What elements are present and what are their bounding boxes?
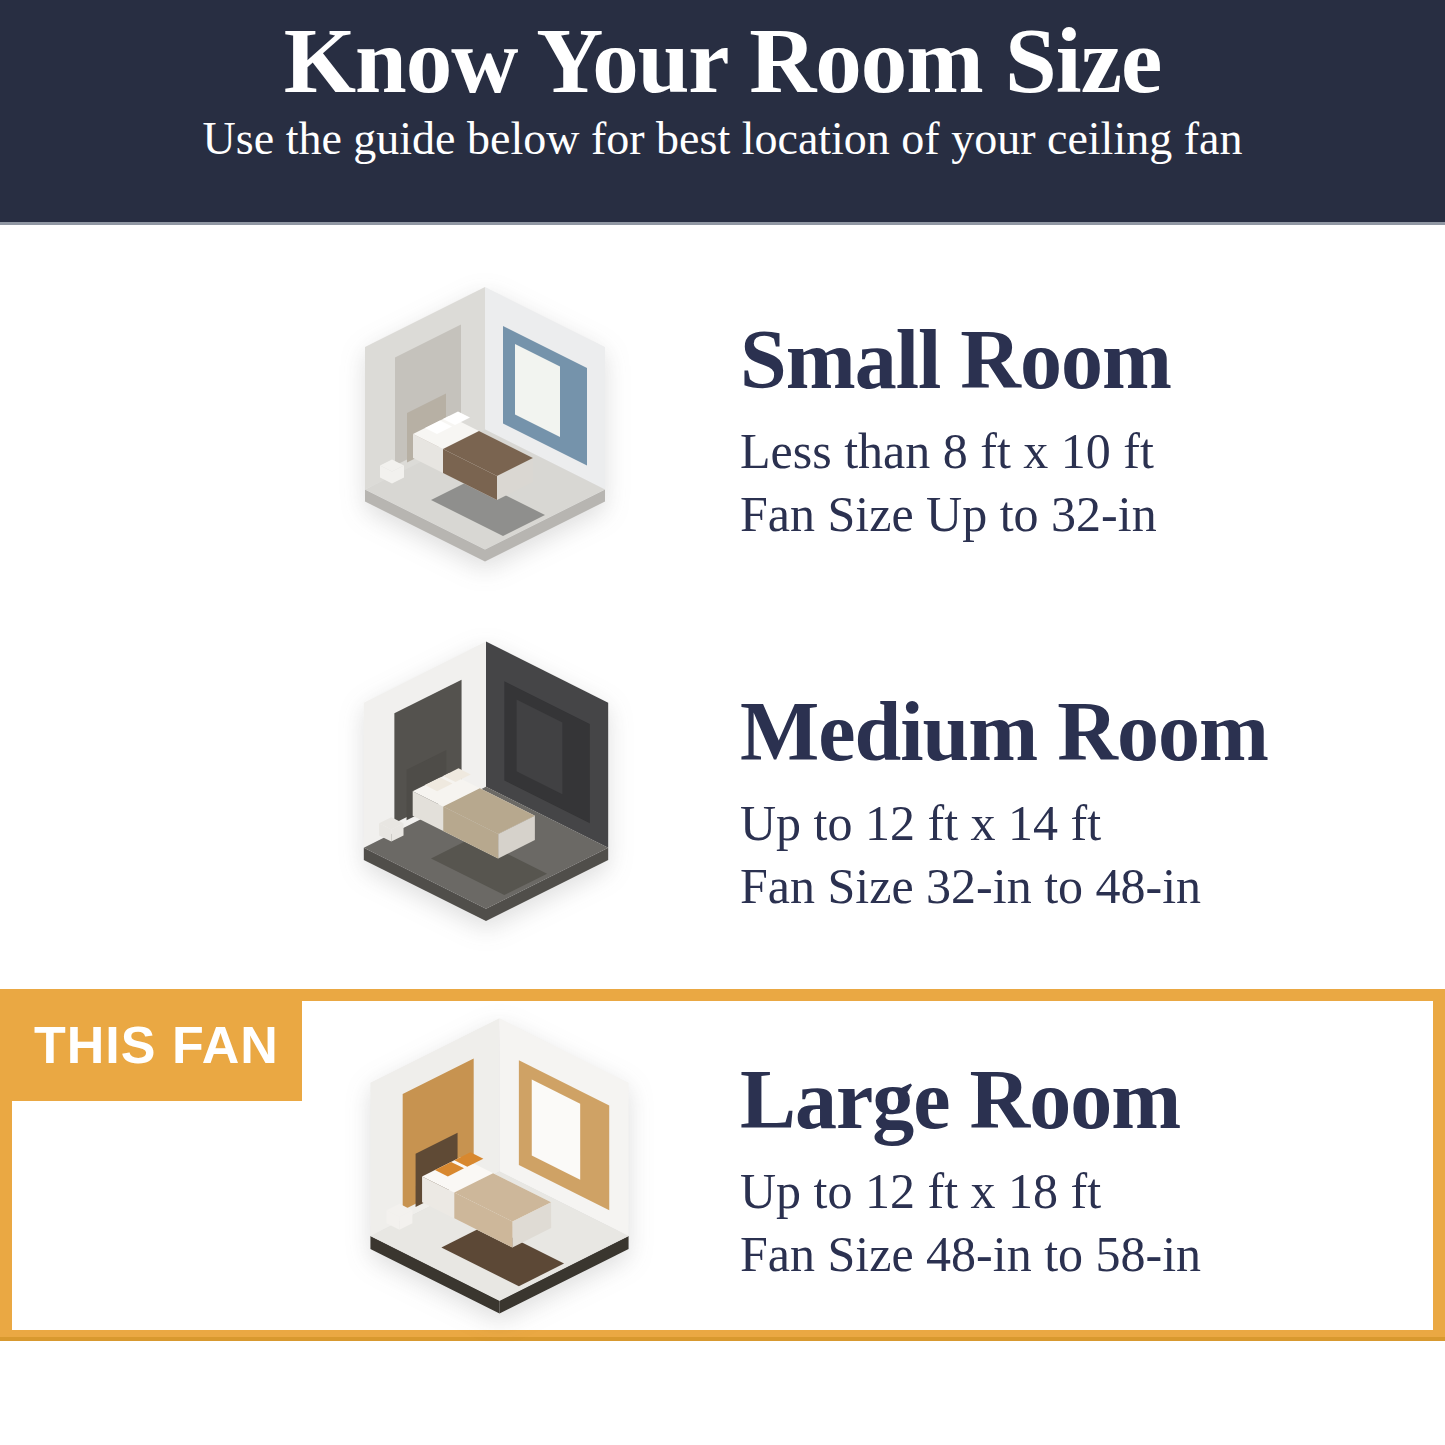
large-room-size-range: Up to 12 ft x 18 ft xyxy=(740,1160,1201,1223)
medium-room-title: Medium Room xyxy=(740,688,1268,776)
section-large-room: Large Room Up to 12 ft x 18 ft Fan Size … xyxy=(740,1056,1201,1286)
highlight-frame: THIS FAN xyxy=(0,989,1445,1341)
header-banner: Know Your Room Size Use the guide below … xyxy=(0,0,1445,225)
small-room-fan-size: Fan Size Up to 32-in xyxy=(740,483,1171,546)
large-room-fan-size: Fan Size 48-in to 58-in xyxy=(740,1223,1201,1286)
page-title: Know Your Room Size xyxy=(0,12,1445,110)
room-size-infographic: Know Your Room Size Use the guide below … xyxy=(0,0,1445,1445)
this-fan-badge: THIS FAN xyxy=(0,989,302,1101)
section-small-room: Small Room Less than 8 ft x 10 ft Fan Si… xyxy=(740,316,1171,546)
medium-room-illustration xyxy=(318,626,654,932)
small-room-illustration xyxy=(320,272,650,572)
medium-bedroom-isometric-illustration xyxy=(318,626,654,932)
small-bedroom-isometric-illustration xyxy=(320,272,650,572)
large-room-title: Large Room xyxy=(740,1056,1201,1144)
large-bedroom-isometric-illustration xyxy=(322,1002,677,1325)
this-fan-badge-label: THIS FAN xyxy=(34,1015,279,1075)
section-medium-room: Medium Room Up to 12 ft x 14 ft Fan Size… xyxy=(740,688,1268,918)
small-room-title: Small Room xyxy=(740,316,1171,404)
medium-room-size-range: Up to 12 ft x 14 ft xyxy=(740,792,1268,855)
large-room-illustration xyxy=(322,1002,677,1325)
page-subtitle: Use the guide below for best location of… xyxy=(0,116,1445,162)
small-room-size-range: Less than 8 ft x 10 ft xyxy=(740,420,1171,483)
medium-room-fan-size: Fan Size 32-in to 48-in xyxy=(740,855,1268,918)
